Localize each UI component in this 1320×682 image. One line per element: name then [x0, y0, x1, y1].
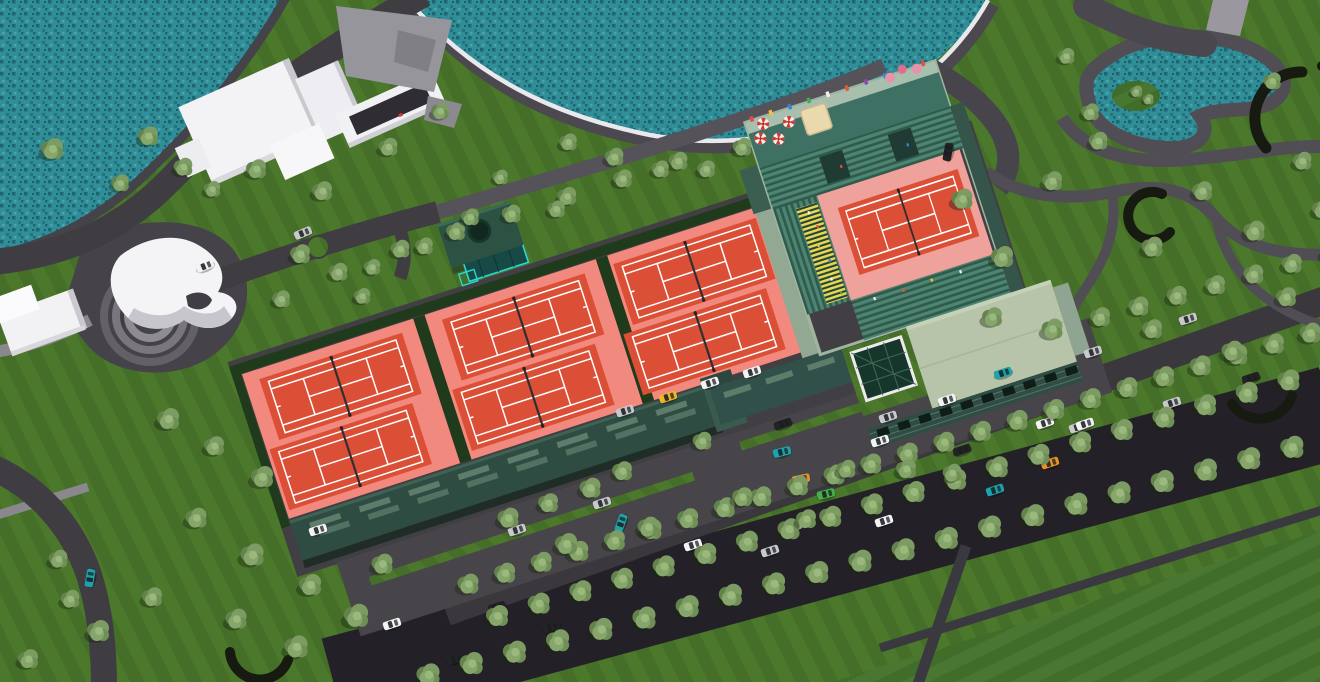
- aerial-render: [0, 0, 1320, 682]
- traffic-island: [307, 236, 329, 258]
- render-canvas: [0, 0, 1320, 682]
